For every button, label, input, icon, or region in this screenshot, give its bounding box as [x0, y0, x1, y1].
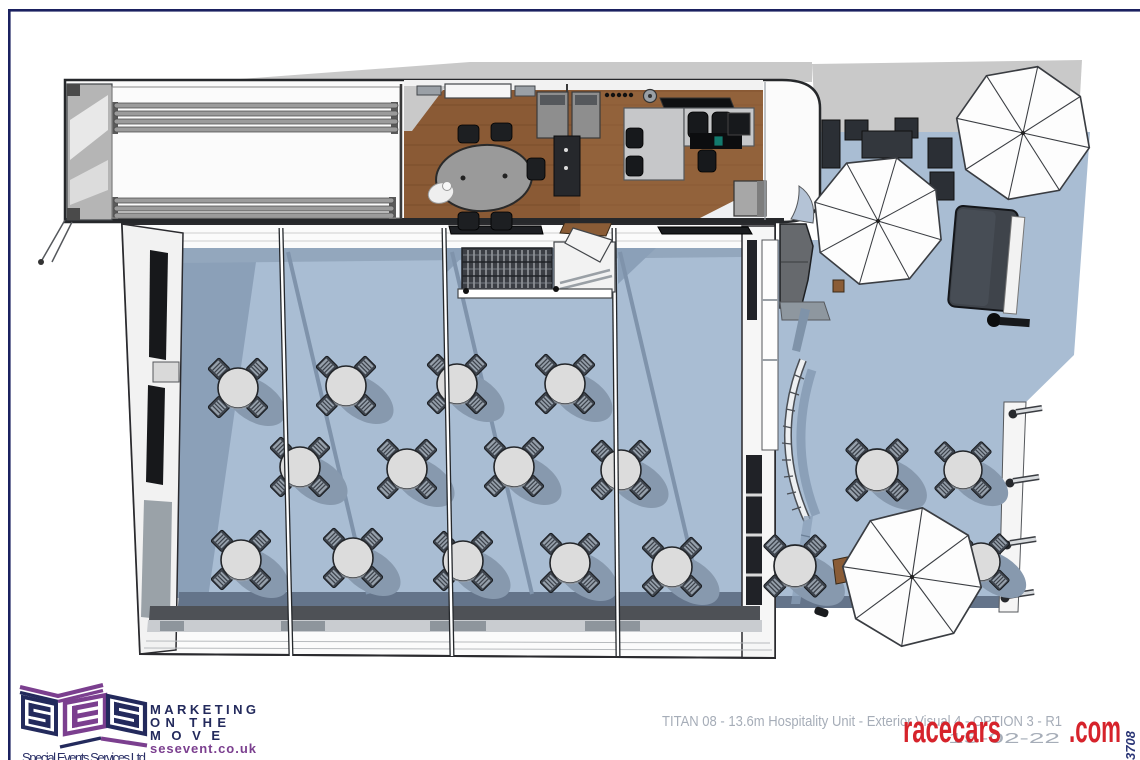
svg-text:3708: 3708: [1123, 730, 1138, 760]
svg-text:racecars: racecars: [903, 709, 1001, 751]
svg-text:sesevent.co.uk: sesevent.co.uk: [150, 741, 257, 756]
svg-text:.com: .com: [1069, 709, 1121, 751]
svg-text:TITAN 08 - 13.6m Hospitality U: TITAN 08 - 13.6m Hospitality Unit - Exte…: [662, 713, 1062, 730]
svg-text:Special Events Services Ltd: Special Events Services Ltd: [22, 750, 146, 760]
